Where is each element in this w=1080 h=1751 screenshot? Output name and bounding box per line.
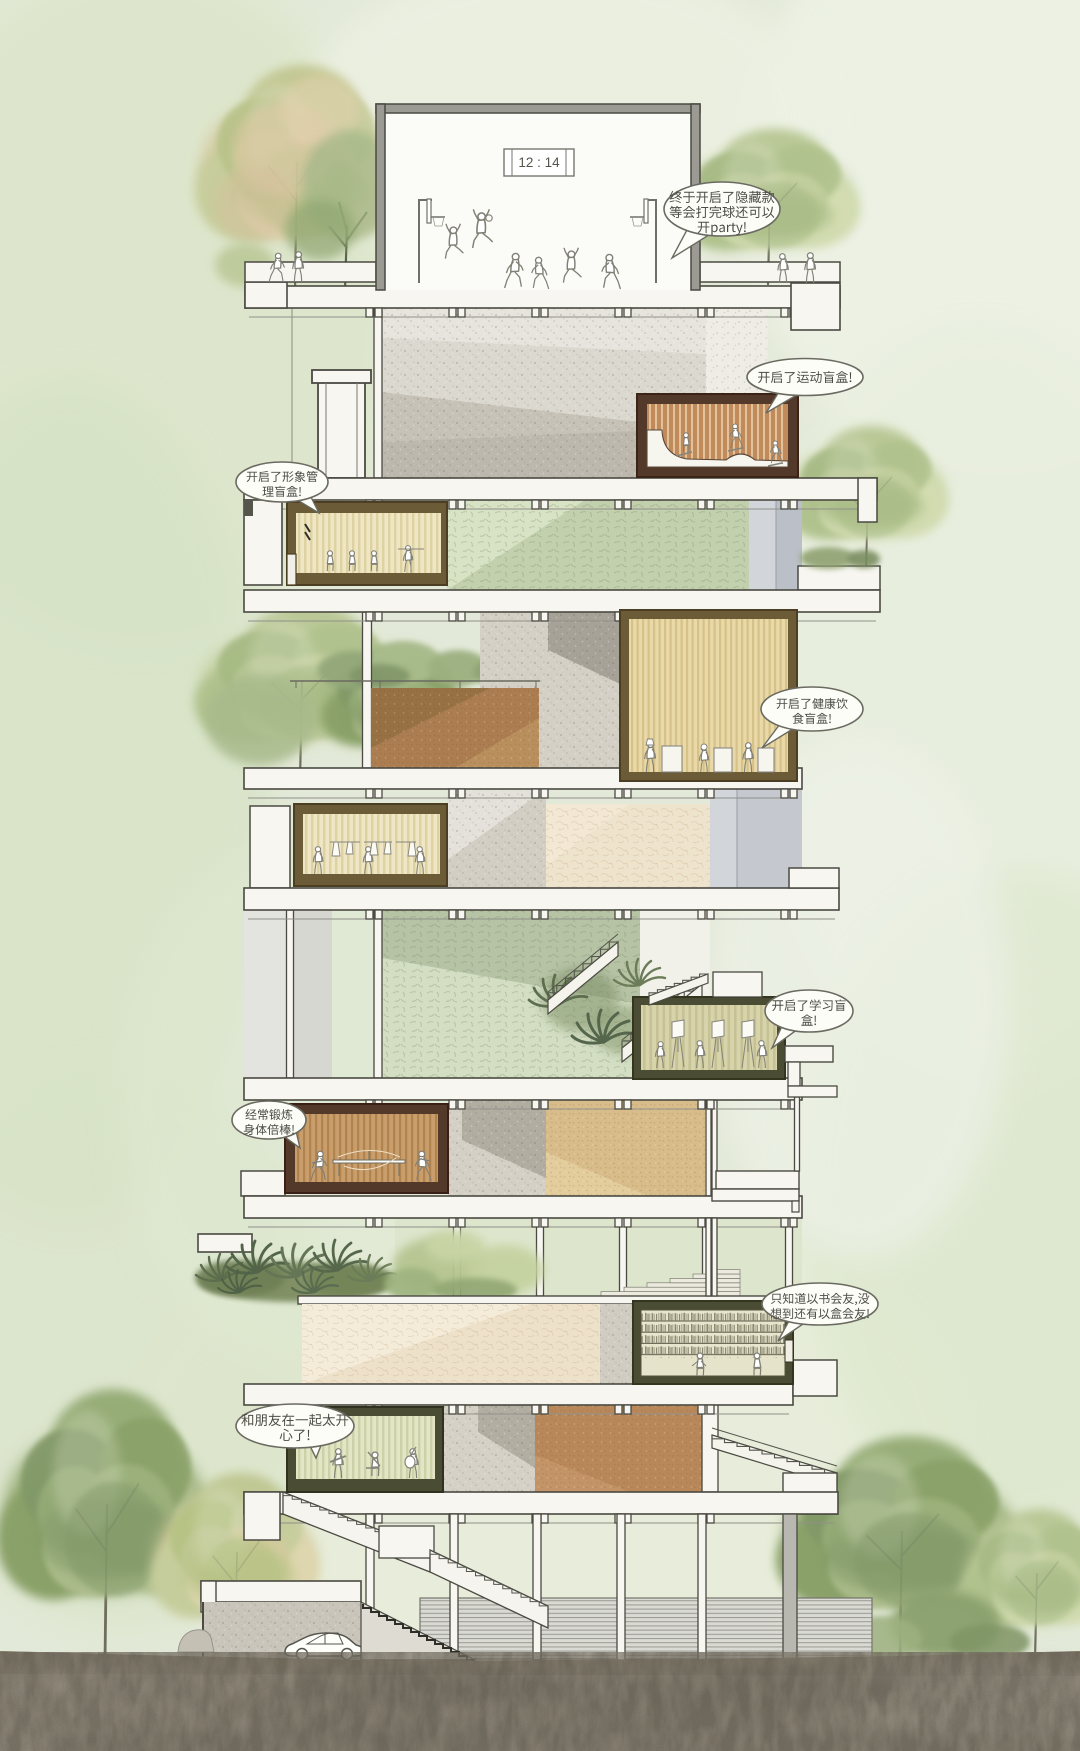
svg-text:12 : 14: 12 : 14 <box>518 155 560 170</box>
